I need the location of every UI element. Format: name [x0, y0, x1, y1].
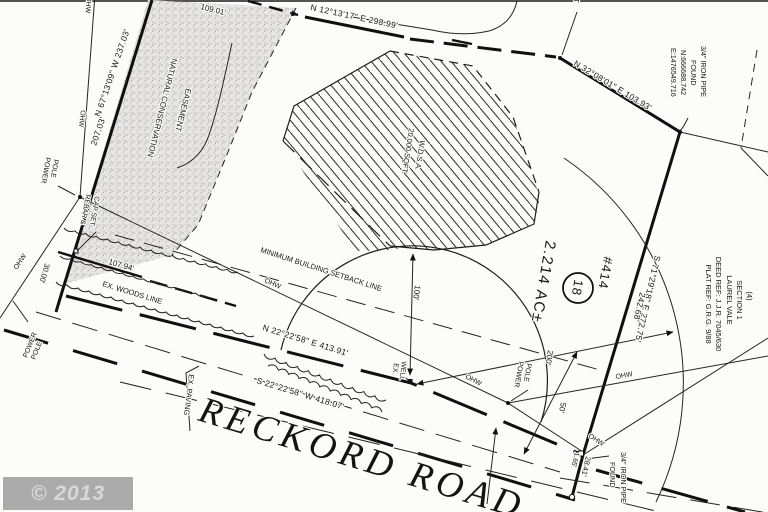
ohw-label-3: OHW: [13, 253, 29, 271]
iron-pipe-ne-label-2: FOUND: [689, 60, 698, 86]
iron-pipe-se-symbol: [569, 494, 574, 499]
leader-pipe-ne: [680, 118, 688, 131]
power-pole-ul-label-1: POWER: [39, 157, 50, 184]
west-part-label: 207.03': [88, 115, 107, 146]
plat-map: N 12°13'17" E 298.99' 109.01' N 67°13'09…: [0, 0, 768, 512]
west-offset-label: 30.00': [37, 262, 51, 284]
iron-pipe-ne-northing: N:666688.742: [679, 50, 688, 95]
ohw-label-6: OHW: [615, 371, 633, 381]
set-partial-label: SET: [572, 0, 582, 4]
leader-set: [562, 12, 577, 55]
adjacent-label-2: SECTION 1: [735, 280, 744, 320]
dimension-50-label: 50': [557, 402, 568, 415]
iron-pipe-ne-easting: E:1476549.716: [669, 48, 678, 97]
ohw-label-7: OHW: [587, 433, 605, 448]
leader-pole-upper: [58, 186, 75, 195]
iron-pipe-se-label-1: 3/4" IRON PIPE: [619, 452, 628, 503]
iron-pipe-se-label-2: FOUND: [608, 462, 617, 488]
lot-number-label: 18: [569, 279, 587, 298]
adjacent-label-4: DEED REF: J.J.R. 7045/630: [714, 257, 723, 352]
radius-100-label: 100': [411, 285, 422, 301]
north-boundary-dashes: [410, 39, 556, 57]
ohw-label-2: OHW: [77, 110, 86, 128]
ohw-label-4: OHW: [263, 277, 282, 291]
right-edge-line: [741, 148, 768, 176]
leader-pole-lower: [13, 301, 28, 322]
corner-marker-ne: [558, 56, 562, 60]
well-label-1: EX.: [391, 363, 399, 375]
adjacent-label-1: (4): [745, 291, 754, 301]
adjacent-lot-line-ne: [680, 132, 768, 152]
tie-2-label: 1.65': [570, 452, 580, 468]
east-boundary-line: [572, 132, 680, 497]
adjacent-lot-line-se: [583, 338, 768, 455]
power-pole-symbol-mid: [506, 401, 510, 405]
adjacent-label-5: PLAT REF: G.R.G. 9/88: [704, 264, 713, 343]
iron-pipe-ne-label-1: 3/4" IRON PIPE: [699, 46, 708, 97]
house-number-label: #414: [595, 255, 615, 290]
plat-page: N 12°13'17" E 298.99' 109.01' N 67°13'09…: [0, 0, 768, 512]
mris-watermark: © 2013 MRIS: [3, 477, 133, 510]
power-pole-symbol-upper: [78, 195, 82, 199]
northeast-bearing-label: N 32°08'01" E 103.93': [572, 58, 654, 113]
paving-label: EX. PAVING: [182, 374, 196, 416]
road-frontage-ext: [596, 470, 745, 512]
ohw-label-1: OHW: [83, 0, 91, 14]
woods-squiggle-line: [56, 282, 254, 337]
right-edge-dashed-line: [741, 50, 757, 148]
lot-area-label: 2.214 AC±: [528, 239, 559, 324]
radius-200-label: 200': [543, 350, 555, 367]
well-radius-arc-200: [564, 158, 683, 502]
adjacent-label-3: LAUREL VALE: [725, 275, 734, 325]
